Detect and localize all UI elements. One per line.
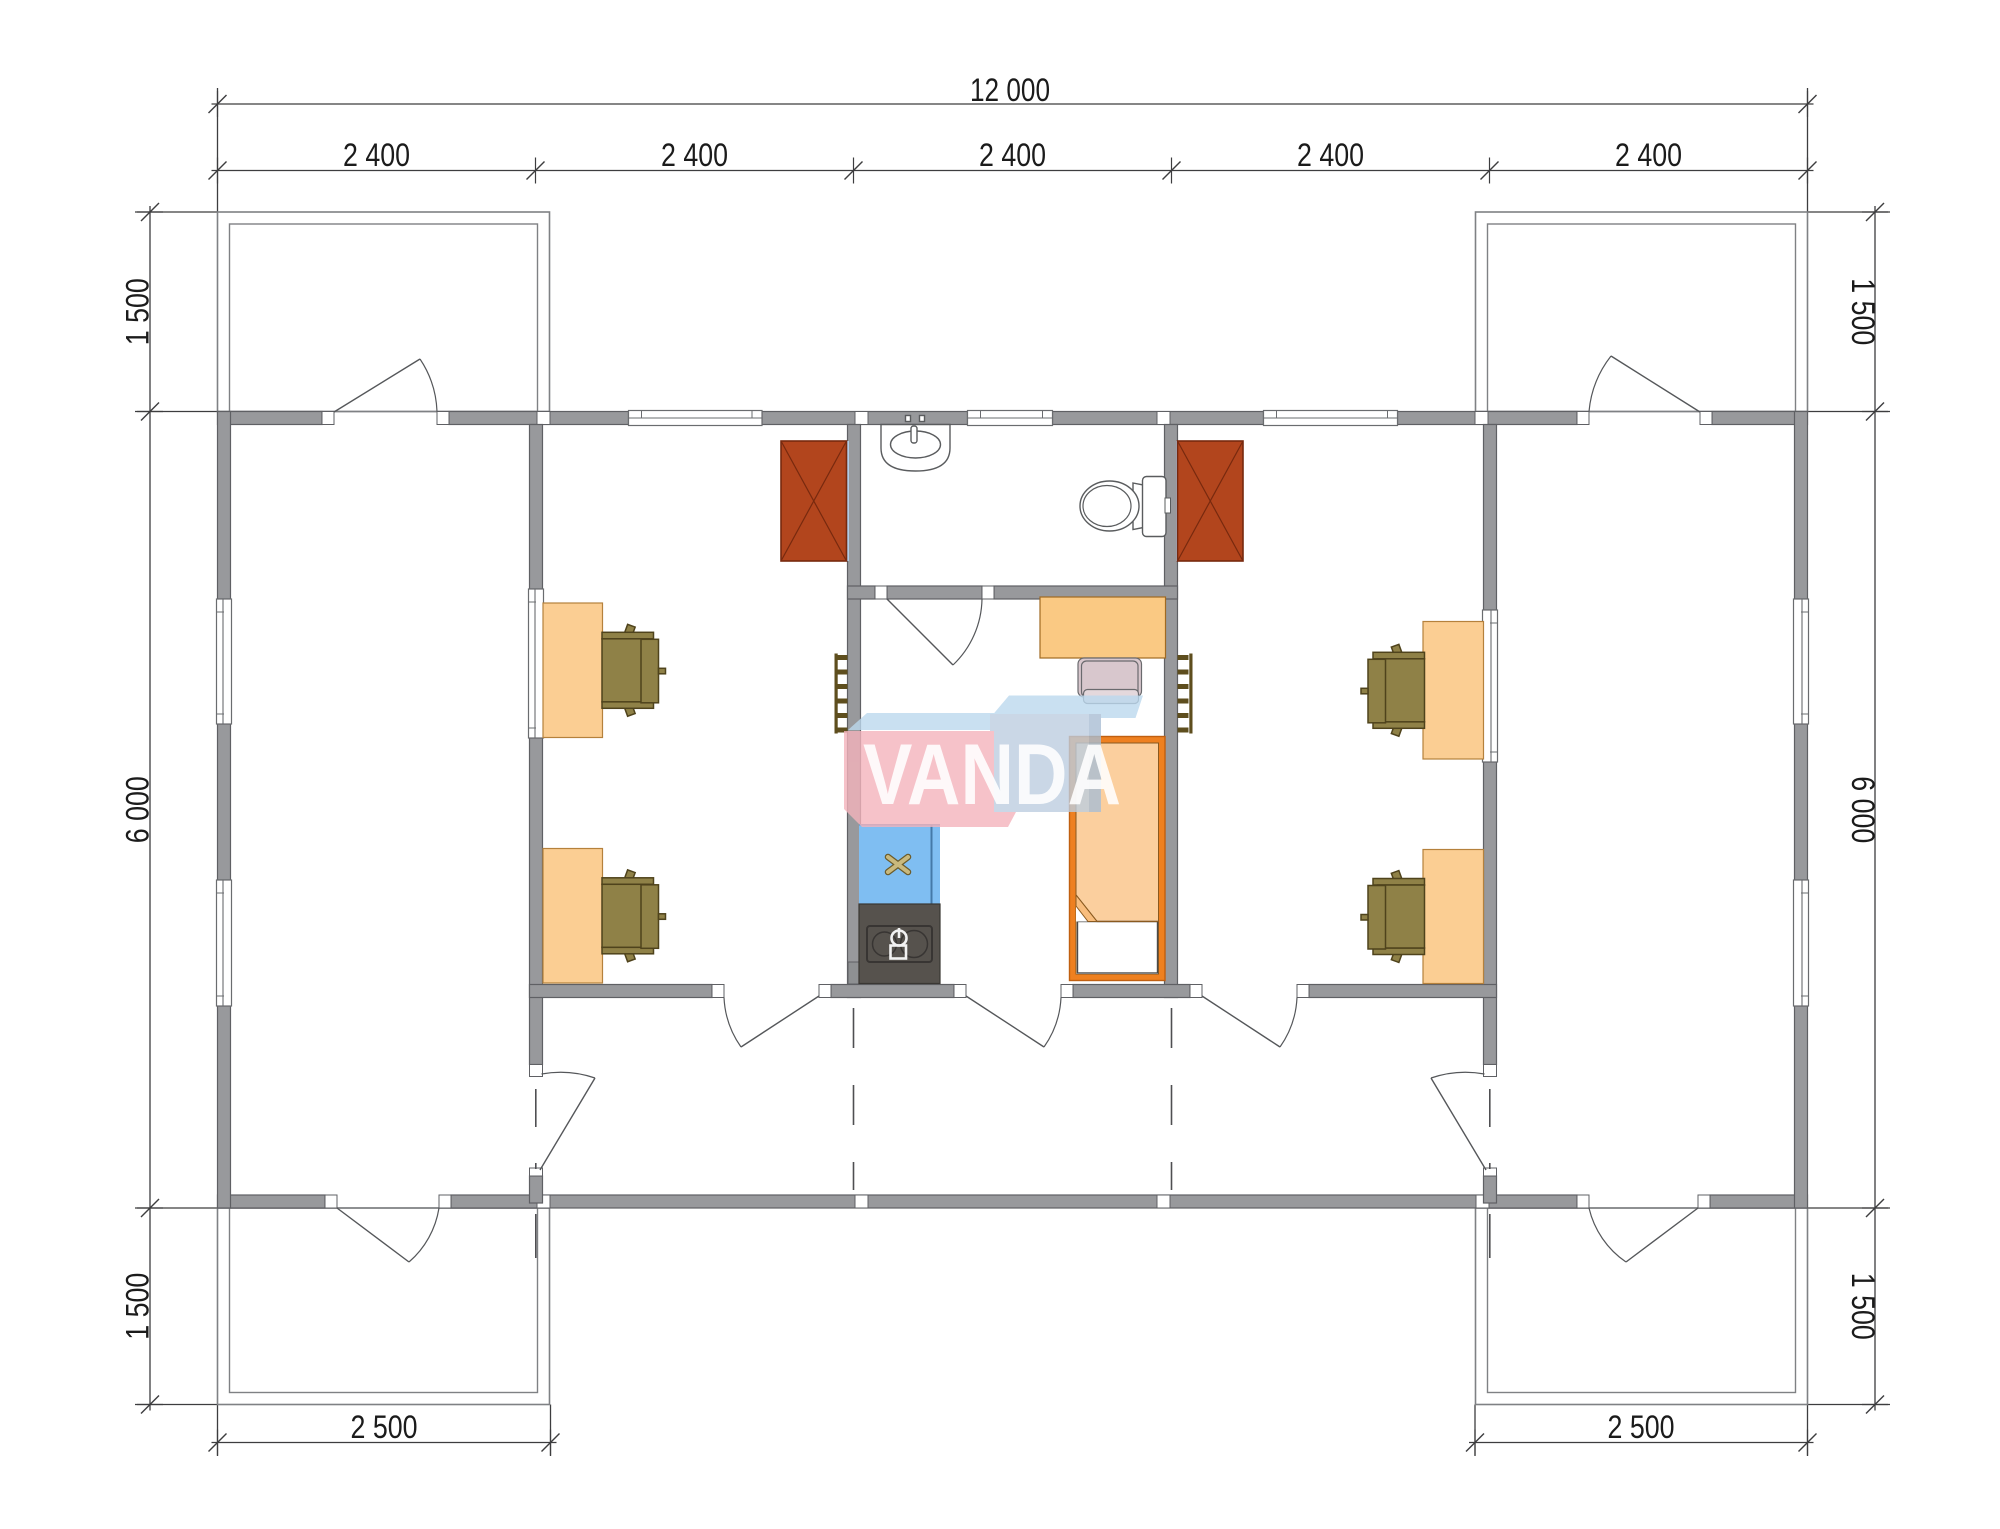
svg-text:2 400: 2 400 (1615, 137, 1682, 173)
svg-text:2 400: 2 400 (343, 137, 410, 173)
svg-text:2 500: 2 500 (351, 1409, 418, 1445)
svg-text:2 500: 2 500 (1608, 1409, 1675, 1445)
svg-text:VANDA: VANDA (863, 727, 1121, 823)
svg-text:6 000: 6 000 (120, 776, 156, 843)
svg-text:1 500: 1 500 (1845, 1273, 1881, 1340)
svg-text:6 000: 6 000 (1845, 776, 1881, 843)
svg-text:12 000: 12 000 (970, 72, 1050, 108)
svg-text:2 400: 2 400 (661, 137, 728, 173)
svg-text:2 400: 2 400 (979, 137, 1046, 173)
svg-text:1 500: 1 500 (120, 1273, 156, 1340)
svg-text:1 500: 1 500 (120, 278, 156, 345)
svg-text:2 400: 2 400 (1297, 137, 1364, 173)
svg-text:1 500: 1 500 (1845, 278, 1881, 345)
